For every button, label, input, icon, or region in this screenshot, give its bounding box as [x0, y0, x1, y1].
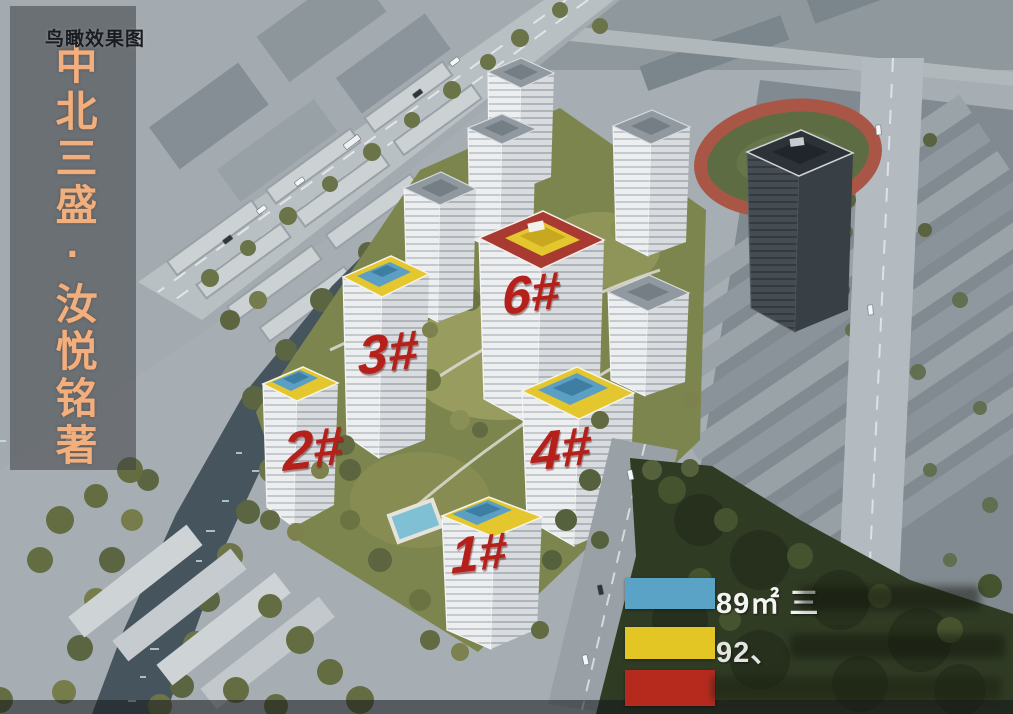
project-title: 中北三盛·汝悦铭著	[51, 42, 95, 470]
tower-unlabeled-d	[613, 110, 690, 256]
tower-unlabeled-e	[608, 275, 689, 396]
building-label-6: 6#	[502, 264, 560, 324]
building-label-4: 4#	[531, 418, 592, 480]
bottom-vignette	[0, 700, 1013, 714]
view-type-label: 鸟瞰效果图	[45, 24, 145, 51]
aerial-render: 中北三盛·汝悦铭著 鸟瞰效果图 1# 2# 3# 4# 6# 89㎡ 三 92、	[0, 0, 1013, 714]
project-banner: 中北三盛·汝悦铭著	[10, 6, 136, 470]
tower-dark	[747, 130, 853, 332]
building-label-3: 3#	[358, 322, 419, 384]
scene-canvas	[0, 0, 1013, 714]
building-label-1: 1#	[451, 524, 507, 581]
building-label-2: 2#	[283, 418, 344, 480]
